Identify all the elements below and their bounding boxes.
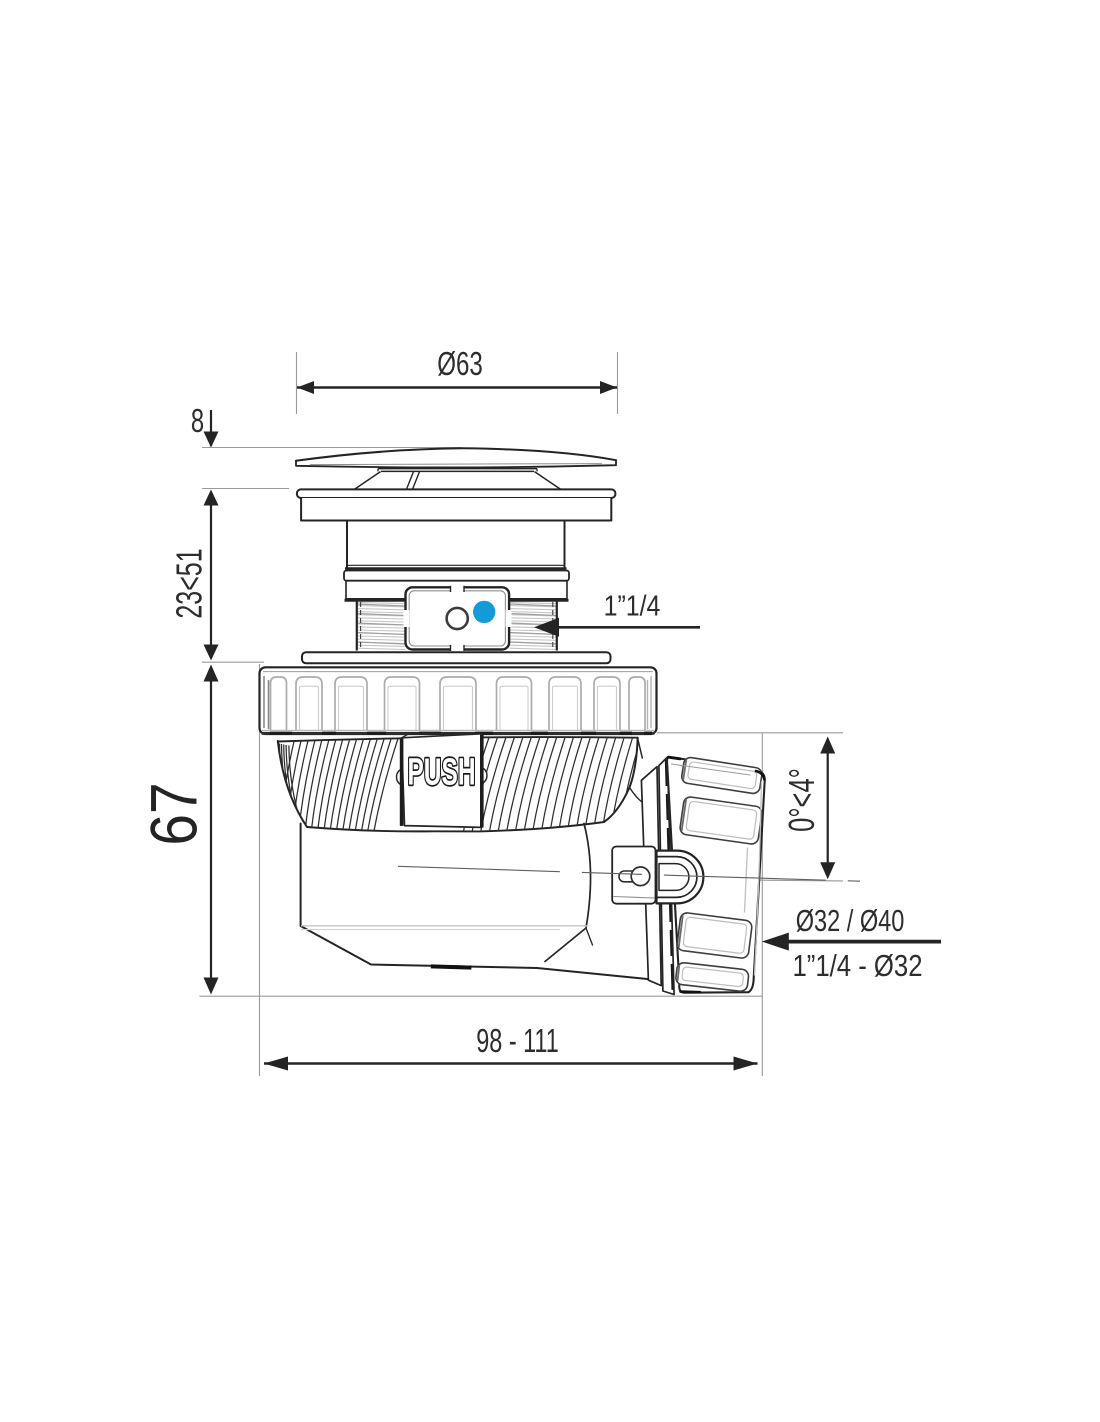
svg-text:8: 8 xyxy=(191,403,204,440)
svg-text:67: 67 xyxy=(138,782,212,845)
svg-text:98 - 111: 98 - 111 xyxy=(476,1023,559,1060)
svg-text:0°<4°: 0°<4° xyxy=(782,768,822,832)
svg-text:1”1/4 - Ø32: 1”1/4 - Ø32 xyxy=(792,949,922,984)
svg-text:23<51: 23<51 xyxy=(169,548,210,618)
svg-text:Ø63: Ø63 xyxy=(437,346,483,383)
svg-text:1”1/4: 1”1/4 xyxy=(604,590,661,622)
svg-text:Ø32 / Ø40: Ø32 / Ø40 xyxy=(796,903,905,938)
svg-text:PUSH: PUSH xyxy=(407,750,475,793)
